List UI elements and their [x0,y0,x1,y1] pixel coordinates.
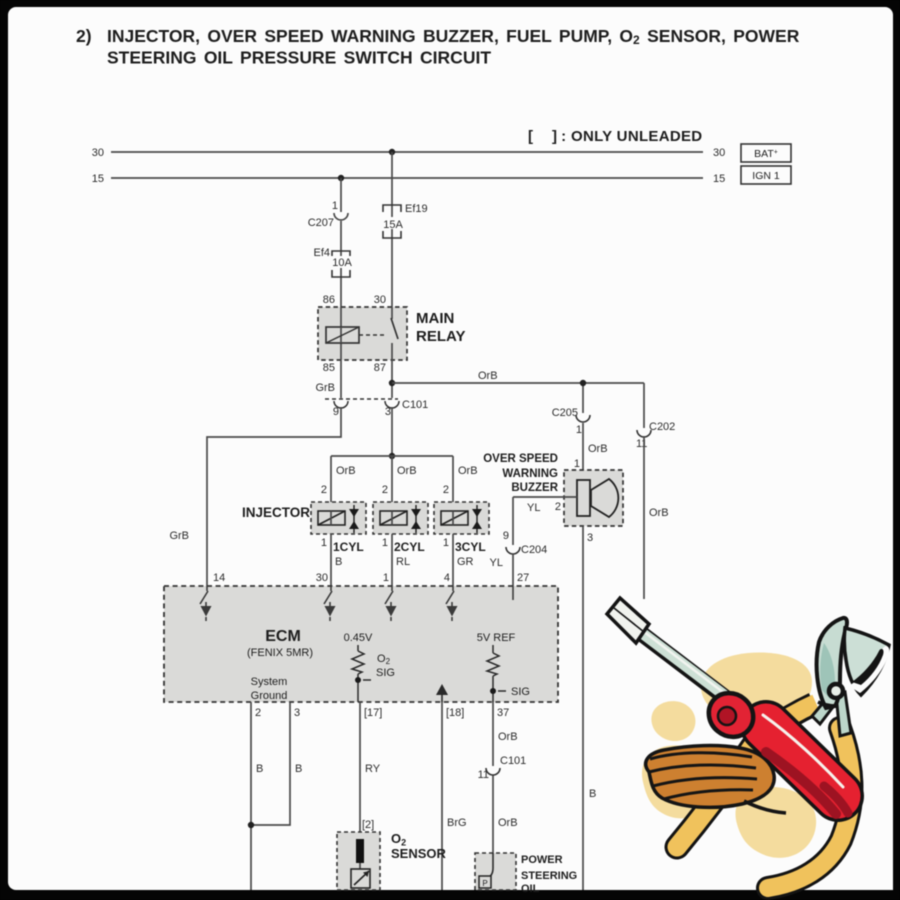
svg-text:1: 1 [574,458,580,470]
svg-text:3CYL: 3CYL [455,540,486,554]
svg-text:2: 2 [443,484,449,496]
svg-text:OrB: OrB [397,465,417,477]
svg-text:3: 3 [385,406,391,418]
svg-text:11: 11 [636,438,647,450]
svg-text:1: 1 [321,537,327,549]
svg-text:OrB: OrB [498,731,518,743]
svg-text:1: 1 [576,424,582,436]
svg-text:86: 86 [323,294,335,306]
svg-text:RY: RY [365,763,381,775]
svg-text:2): 2) [76,26,92,46]
svg-text:RELAY: RELAY [416,328,465,345]
svg-text:2CYL: 2CYL [394,540,425,554]
svg-text:YL: YL [490,557,503,569]
svg-text:BrG: BrG [447,817,467,829]
svg-text:85: 85 [323,362,335,374]
svg-text:STEERING OIL PRESSURE SWITCH C: STEERING OIL PRESSURE SWITCH CIRCUIT [107,48,491,68]
svg-text:4: 4 [444,572,450,584]
svg-text:MAIN: MAIN [416,310,454,327]
svg-text:27: 27 [517,572,529,584]
svg-text:30: 30 [92,147,104,159]
svg-text:2: 2 [255,707,261,719]
svg-text:B: B [256,763,263,775]
svg-text:C207: C207 [308,217,334,229]
svg-text:30: 30 [316,572,328,584]
svg-text:9: 9 [333,406,339,418]
svg-text:[18]: [18] [446,707,464,719]
svg-text:B: B [295,763,302,775]
svg-text:] :: ] : [552,128,566,145]
svg-text:OrB: OrB [478,370,498,382]
svg-text:[2]: [2] [362,819,374,831]
svg-text:37: 37 [497,707,509,719]
svg-text:C202: C202 [649,421,675,433]
svg-text:P: P [482,879,487,888]
svg-text:OrB: OrB [458,465,478,477]
svg-text:SIG: SIG [511,686,530,698]
svg-text:GrB: GrB [315,382,335,394]
svg-text:10A: 10A [332,257,352,269]
svg-text:14: 14 [213,572,225,584]
svg-text:POWER: POWER [521,854,563,866]
svg-text:B: B [589,788,596,800]
svg-text:INJECTOR: INJECTOR [242,505,310,520]
svg-text:OrB: OrB [336,465,356,477]
svg-text:RL: RL [396,556,410,568]
svg-text:OrB: OrB [588,443,608,455]
svg-text:87: 87 [374,362,386,374]
svg-text:C101: C101 [402,399,428,411]
svg-text:OVER SPEED: OVER SPEED [483,453,558,465]
svg-text:2: 2 [321,484,327,496]
svg-text:ONLY UNLEADED: ONLY UNLEADED [571,128,702,145]
svg-text:OrB: OrB [649,507,669,519]
svg-text:Ground: Ground [251,690,288,702]
svg-text:15: 15 [713,173,725,185]
svg-text:STEERING: STEERING [521,870,577,882]
svg-text:C101: C101 [500,755,526,767]
svg-text:B: B [335,556,342,568]
svg-text:GrB: GrB [169,530,189,542]
svg-text:2: 2 [555,501,561,513]
svg-text:Ef4: Ef4 [313,247,330,259]
svg-text:C205: C205 [552,407,578,419]
svg-text:15A: 15A [383,219,403,231]
svg-text:30: 30 [374,294,386,306]
svg-text:YL: YL [527,502,540,514]
svg-text:Ef19: Ef19 [405,203,428,215]
svg-text:OIL: OIL [521,883,540,895]
svg-text:SENSOR: SENSOR [391,846,447,861]
svg-text:3: 3 [294,707,300,719]
svg-text:IGN 1: IGN 1 [752,170,780,182]
svg-text:3: 3 [587,532,593,544]
svg-text:SIG: SIG [376,667,395,679]
svg-text:GR: GR [457,556,474,568]
svg-text:1CYL: 1CYL [333,540,364,554]
svg-text:11: 11 [478,769,489,781]
svg-text:ECM: ECM [265,628,301,645]
svg-text:OrB: OrB [498,817,518,829]
svg-text:System: System [251,676,288,688]
svg-text:30: 30 [713,147,725,159]
svg-text:BUZZER: BUZZER [511,482,558,494]
svg-text:1: 1 [382,537,388,549]
svg-text:0.45V: 0.45V [344,632,373,644]
svg-text:[17]: [17] [364,707,382,719]
svg-text:C204: C204 [521,544,547,556]
svg-text:1: 1 [383,572,389,584]
svg-text:2: 2 [382,484,388,496]
svg-text:1: 1 [443,537,449,549]
svg-text:1: 1 [332,200,338,212]
svg-text:(FENIX 5MR): (FENIX 5MR) [247,647,313,659]
svg-text:WARNING: WARNING [502,468,558,480]
svg-text:9: 9 [503,530,509,542]
svg-text:INJECTOR, OVER SPEED WARNING B: INJECTOR, OVER SPEED WARNING BUZZER, FUE… [107,26,800,47]
svg-text:15: 15 [92,173,104,185]
svg-text:[: [ [528,128,533,145]
svg-text:5V REF: 5V REF [477,632,516,644]
